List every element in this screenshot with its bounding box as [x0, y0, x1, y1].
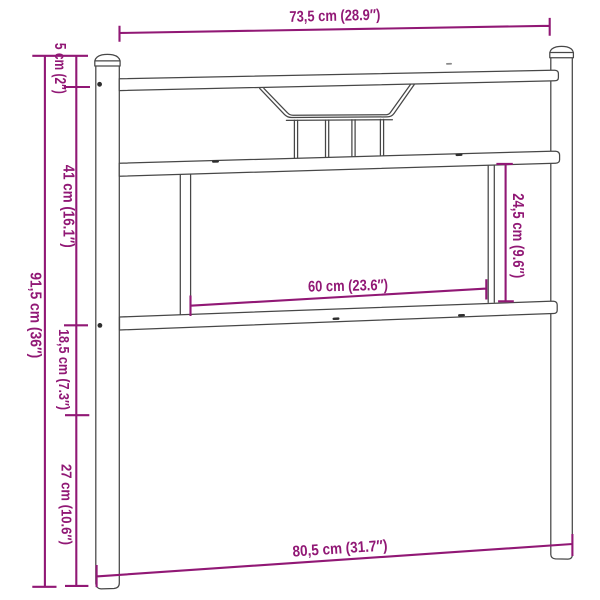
svg-text:24,5 cm (9.6″): 24,5 cm (9.6″) [509, 193, 526, 278]
svg-text:5 cm (2″): 5 cm (2″) [51, 43, 68, 94]
svg-text:27 cm (10.6″): 27 cm (10.6″) [58, 464, 74, 545]
svg-text:60 cm (23.6″): 60 cm (23.6″) [308, 277, 388, 296]
svg-text:18,5 cm (7.3″): 18,5 cm (7.3″) [55, 329, 71, 410]
svg-text:73,5 cm (28.9″): 73,5 cm (28.9″) [289, 7, 380, 26]
svg-text:41 cm (16.1″): 41 cm (16.1″) [60, 165, 77, 248]
svg-text:91,5 cm (36″): 91,5 cm (36″) [26, 272, 43, 358]
